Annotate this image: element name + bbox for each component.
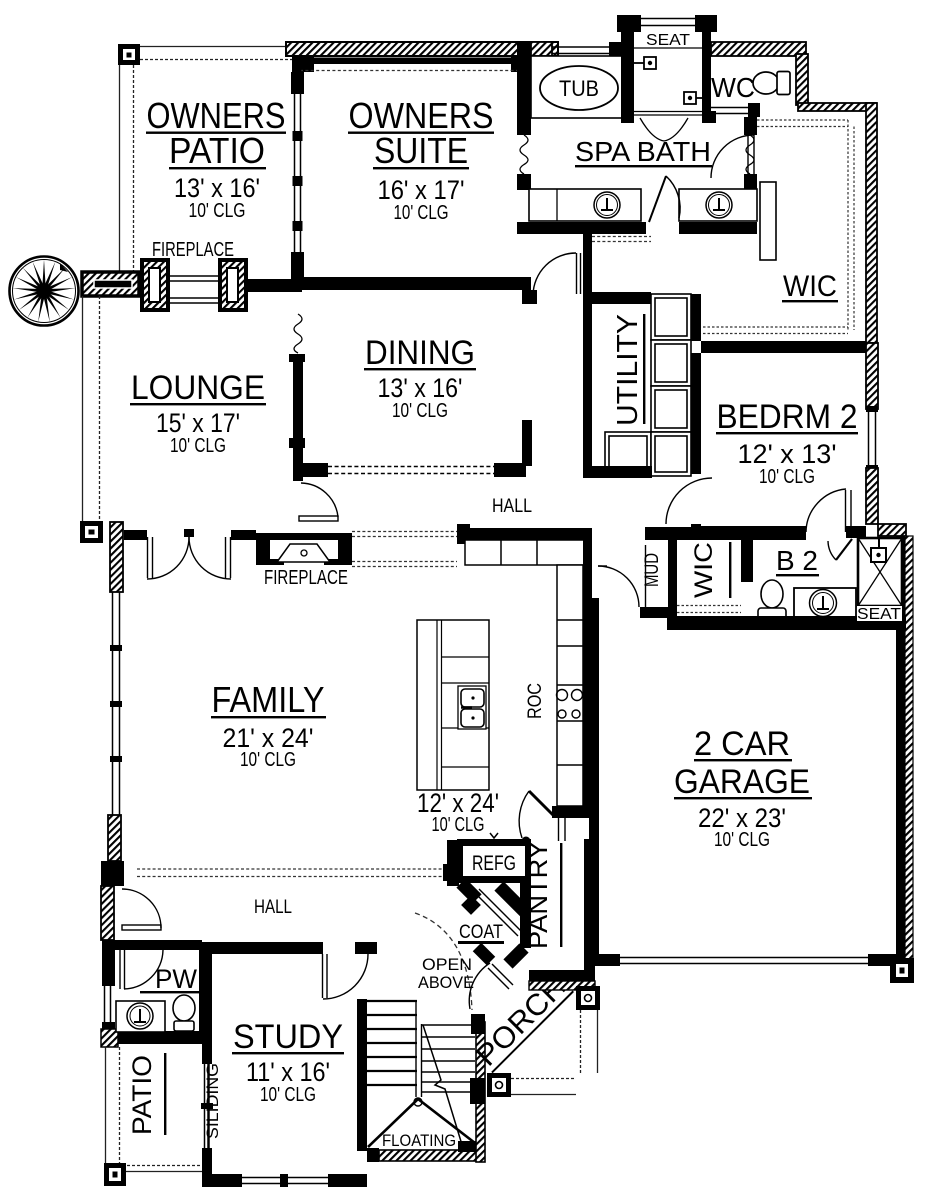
svg-text:COAT: COAT [459, 922, 503, 943]
svg-text:15' x 17': 15' x 17' [156, 408, 240, 438]
svg-text:PATIO: PATIO [127, 1055, 157, 1135]
svg-text:WC: WC [711, 72, 755, 103]
svg-text:10' CLG: 10' CLG [189, 200, 246, 222]
svg-text:REFG: REFG [472, 852, 516, 875]
svg-text:WIC: WIC [690, 542, 718, 598]
svg-text:10' CLG: 10' CLG [260, 1084, 316, 1106]
svg-text:HALL: HALL [254, 897, 292, 918]
svg-text:PANTRY: PANTRY [523, 841, 553, 949]
svg-text:TUB: TUB [559, 76, 599, 101]
svg-text:SUITE: SUITE [374, 130, 468, 171]
svg-text:SILIDING: SILIDING [203, 1063, 222, 1139]
svg-text:12' x 13': 12' x 13' [738, 439, 837, 469]
svg-text:10' CLG: 10' CLG [714, 829, 770, 851]
svg-text:PATIO: PATIO [169, 130, 265, 171]
svg-text:2 CAR: 2 CAR [694, 725, 790, 763]
svg-text:PW: PW [155, 964, 197, 994]
svg-text:10' CLG: 10' CLG [432, 814, 485, 836]
svg-text:GARAGE: GARAGE [674, 763, 810, 801]
svg-text:10' CLG: 10' CLG [170, 435, 226, 457]
svg-text:13' x 16': 13' x 16' [378, 373, 463, 403]
svg-text:B 2: B 2 [776, 545, 818, 576]
svg-text:SEAT: SEAT [646, 32, 690, 49]
svg-text:BEDRM 2: BEDRM 2 [717, 398, 858, 436]
svg-text:LOUNGE: LOUNGE [131, 369, 265, 407]
svg-text:10' CLG: 10' CLG [759, 466, 815, 488]
svg-text:ROC: ROC [525, 683, 546, 719]
svg-text:10' CLG: 10' CLG [394, 202, 449, 224]
svg-text:UTILITY: UTILITY [612, 314, 644, 426]
svg-text:SEAT: SEAT [857, 606, 901, 623]
svg-text:11' x 16': 11' x 16' [246, 1057, 330, 1087]
svg-text:FAMILY: FAMILY [212, 679, 325, 720]
svg-text:FIREPLACE: FIREPLACE [152, 239, 234, 261]
svg-text:FIREPLACE: FIREPLACE [264, 567, 348, 589]
svg-text:SPA BATH: SPA BATH [575, 136, 711, 167]
svg-text:10' CLG: 10' CLG [392, 400, 448, 422]
svg-text:16' x 17': 16' x 17' [378, 175, 465, 205]
svg-text:WIC: WIC [783, 270, 837, 303]
svg-text:OPEN: OPEN [422, 955, 472, 974]
svg-text:HALL: HALL [492, 496, 532, 517]
svg-text:ABOVE: ABOVE [418, 973, 474, 992]
svg-text:MUD: MUD [642, 553, 663, 587]
svg-text:DINING: DINING [365, 334, 475, 372]
svg-text:13' x 16': 13' x 16' [174, 173, 260, 203]
svg-text:10' CLG: 10' CLG [240, 749, 296, 771]
svg-text:FLOATING: FLOATING [382, 1131, 456, 1150]
svg-text:STUDY: STUDY [233, 1018, 343, 1056]
